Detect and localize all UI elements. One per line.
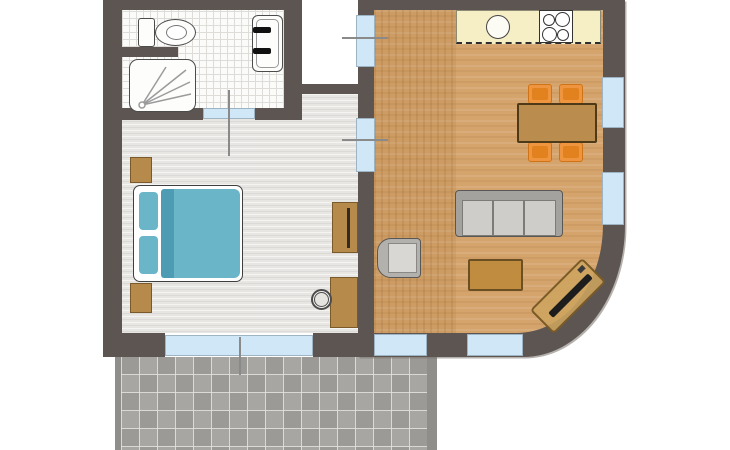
stove-burner-1 — [543, 14, 555, 26]
bedroom-door-line — [342, 139, 388, 141]
dining-chair-1 — [528, 84, 552, 104]
bedroom-window-divider-line — [239, 337, 241, 375]
stove-burner-4 — [557, 29, 569, 41]
wall-recess-bottom — [302, 84, 358, 94]
bathroom-door-line — [228, 90, 230, 156]
sofa-cushion-2 — [493, 200, 524, 236]
shower — [129, 59, 196, 112]
wardrobe — [332, 202, 358, 253]
dining-chair-seat — [563, 88, 579, 100]
dining-chair-2 — [559, 84, 583, 104]
sofa-cushion-3 — [524, 200, 556, 236]
bathtub-handle-2 — [253, 48, 271, 54]
kitchen-counter — [456, 10, 601, 44]
window-living-east-2 — [602, 172, 624, 225]
dining-chair-3 — [528, 142, 552, 162]
entry-door-line — [342, 37, 388, 39]
bathtub-handle-1 — [253, 27, 271, 33]
tv-mount — [577, 265, 585, 273]
wall-bedroom-bottom-right — [313, 333, 374, 357]
living-room-floor-grain-strip — [374, 10, 456, 333]
wall-left — [103, 0, 122, 357]
wall-bedroom-bottom-left — [103, 333, 165, 357]
coffee-table — [468, 259, 523, 291]
bed-blanket — [174, 189, 240, 278]
stove-burner-3 — [542, 27, 557, 42]
wall-bathroom-right — [284, 0, 302, 120]
floor-plan — [0, 0, 730, 450]
window-living-south-2 — [467, 334, 523, 356]
toilet-tank — [138, 18, 155, 47]
armchair-cushion — [388, 243, 417, 273]
shower-spray-icon — [130, 60, 194, 110]
wall-bathroom-bottom-right — [255, 108, 302, 120]
desk — [330, 277, 358, 328]
stove — [539, 10, 573, 43]
dining-chair-4 — [559, 142, 583, 162]
dining-chair-seat — [563, 146, 579, 158]
dining-table — [517, 103, 597, 143]
wall-top-left — [103, 0, 302, 10]
nightstand-top — [130, 157, 152, 183]
wall-shower-divider — [122, 47, 178, 57]
bedroom-living-door — [356, 118, 375, 172]
entry-door — [356, 15, 375, 67]
nightstand-bottom — [130, 283, 152, 313]
dining-chair-seat — [532, 146, 548, 158]
sofa-cushion-1 — [462, 200, 493, 236]
toilet-bowl-inner — [166, 25, 187, 40]
stove-burner-2 — [555, 12, 570, 27]
terrace-edge-right — [427, 357, 437, 450]
bed-pillow-1 — [139, 192, 158, 230]
kitchen-sink — [486, 15, 510, 39]
wardrobe-handle — [347, 208, 350, 248]
window-living-south-1 — [374, 334, 427, 356]
window-living-east-1 — [602, 77, 624, 128]
terrace-tiles — [121, 357, 427, 450]
dining-chair-seat — [532, 88, 548, 100]
bed-pillow-2 — [139, 236, 158, 274]
desk-chair-seat — [314, 292, 329, 307]
